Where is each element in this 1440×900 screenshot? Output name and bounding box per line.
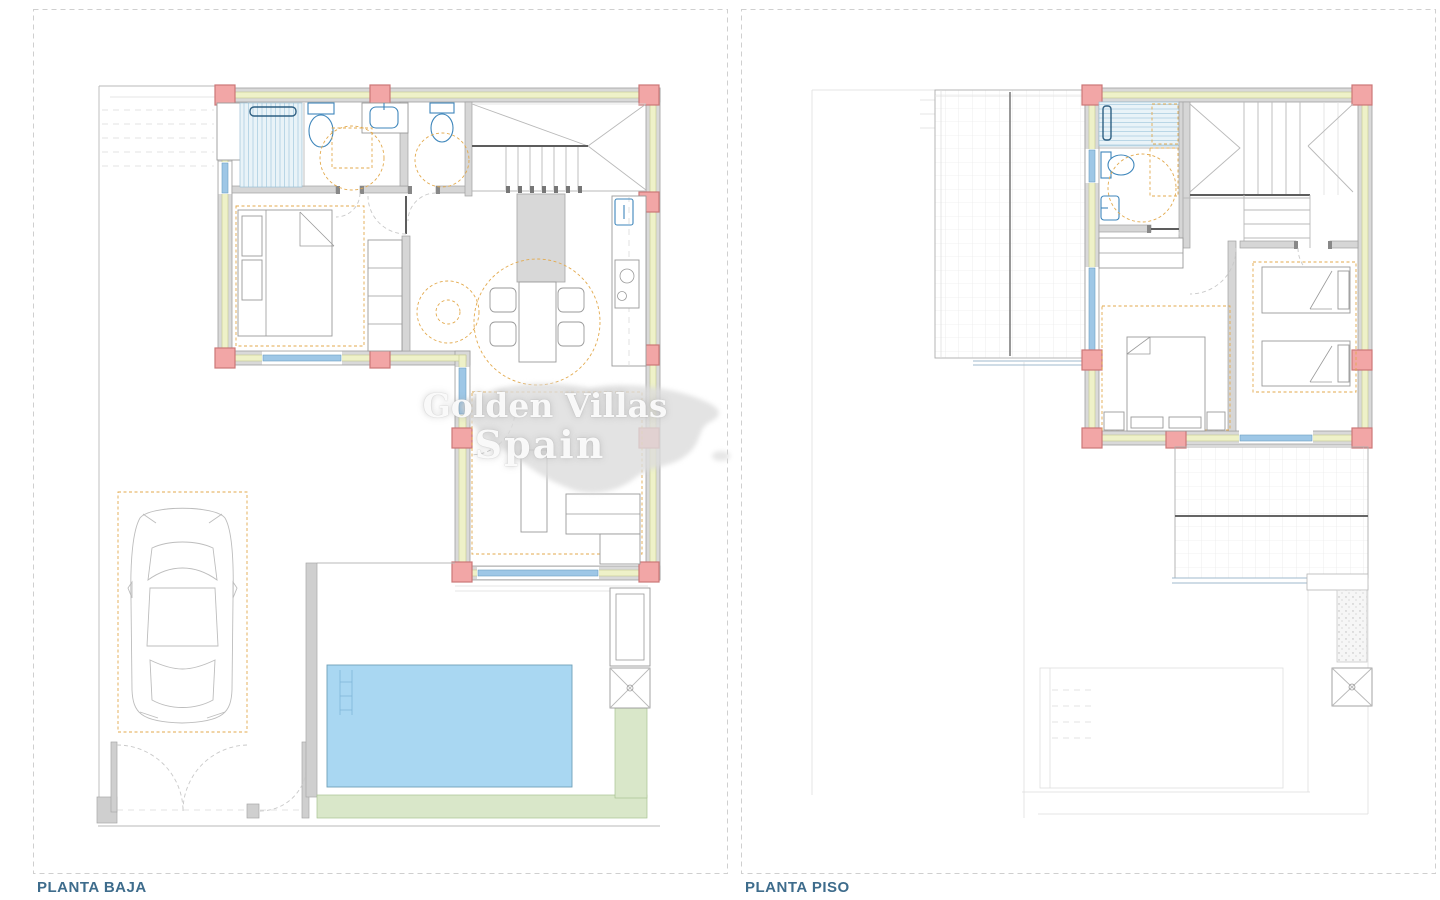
column xyxy=(215,85,235,105)
column xyxy=(370,85,390,105)
door-arc xyxy=(470,410,515,455)
toilet xyxy=(430,103,454,142)
floor-plan-sheet: Golden Villas Spain PLANTA BAJA PLANTA P… xyxy=(0,0,1440,900)
planta-piso-plan xyxy=(740,0,1440,875)
console xyxy=(521,450,547,532)
side-wall xyxy=(306,563,317,797)
planta-baja-plan xyxy=(0,0,740,875)
parking-space xyxy=(118,492,247,732)
stair-ticks xyxy=(506,186,582,193)
dining-chair xyxy=(490,288,516,312)
side-table xyxy=(417,281,479,343)
pool-deck xyxy=(317,795,647,818)
toilet xyxy=(308,103,334,147)
outdoor-shower xyxy=(1332,668,1372,706)
sink-vanity xyxy=(362,103,408,133)
bathroom-1 xyxy=(240,103,408,190)
bedroom xyxy=(236,196,406,351)
wardrobe xyxy=(368,240,402,351)
clearance-circle xyxy=(1108,154,1176,222)
column xyxy=(452,562,472,582)
twin-bed xyxy=(1262,341,1350,386)
column xyxy=(1352,85,1372,105)
door-arc xyxy=(368,196,406,234)
gravel-strip xyxy=(1337,590,1367,662)
bathroom xyxy=(1099,102,1186,260)
bedroom-twin xyxy=(1253,262,1356,392)
sofa xyxy=(566,494,640,564)
column xyxy=(1352,428,1372,448)
nightstand xyxy=(1207,412,1225,430)
planter xyxy=(610,588,650,666)
double-bed xyxy=(1127,337,1205,431)
glass-rail xyxy=(1172,578,1307,583)
staircase xyxy=(1183,102,1358,280)
left-plan-title: PLANTA BAJA xyxy=(37,879,147,896)
column xyxy=(215,348,235,368)
outdoor-shower xyxy=(610,668,650,708)
pool xyxy=(327,665,572,787)
pool-below-outline xyxy=(1040,668,1283,788)
double-bed xyxy=(238,210,334,336)
car xyxy=(128,508,237,723)
roof-terrace xyxy=(935,90,1085,365)
island xyxy=(517,194,565,282)
terrace xyxy=(1172,447,1372,706)
column xyxy=(639,562,659,582)
column xyxy=(639,85,659,105)
wardrobe xyxy=(1099,238,1183,268)
pool-deck xyxy=(615,708,647,798)
gates xyxy=(97,742,309,823)
dining-table xyxy=(519,282,556,362)
column xyxy=(1082,428,1102,448)
column xyxy=(1352,350,1372,370)
twin-bed xyxy=(1262,267,1350,313)
column xyxy=(1082,350,1102,370)
column xyxy=(452,428,472,448)
right-plan-title: PLANTA PISO xyxy=(745,879,850,896)
dining-chair xyxy=(558,288,584,312)
dining-chair xyxy=(558,322,584,346)
staircase xyxy=(472,104,646,193)
glass-rail xyxy=(973,361,1085,365)
bathroom-2 xyxy=(415,103,469,187)
car-gate-arc xyxy=(117,745,247,811)
cooktop xyxy=(615,260,639,308)
bedroom-main xyxy=(1099,238,1236,431)
dining-chair xyxy=(490,322,516,346)
pool-area xyxy=(306,563,650,818)
garage xyxy=(118,492,247,732)
living-room xyxy=(455,392,648,591)
pedestrian-gate-arc xyxy=(260,764,307,811)
dining-area xyxy=(417,259,600,385)
nightstand xyxy=(1104,412,1124,430)
